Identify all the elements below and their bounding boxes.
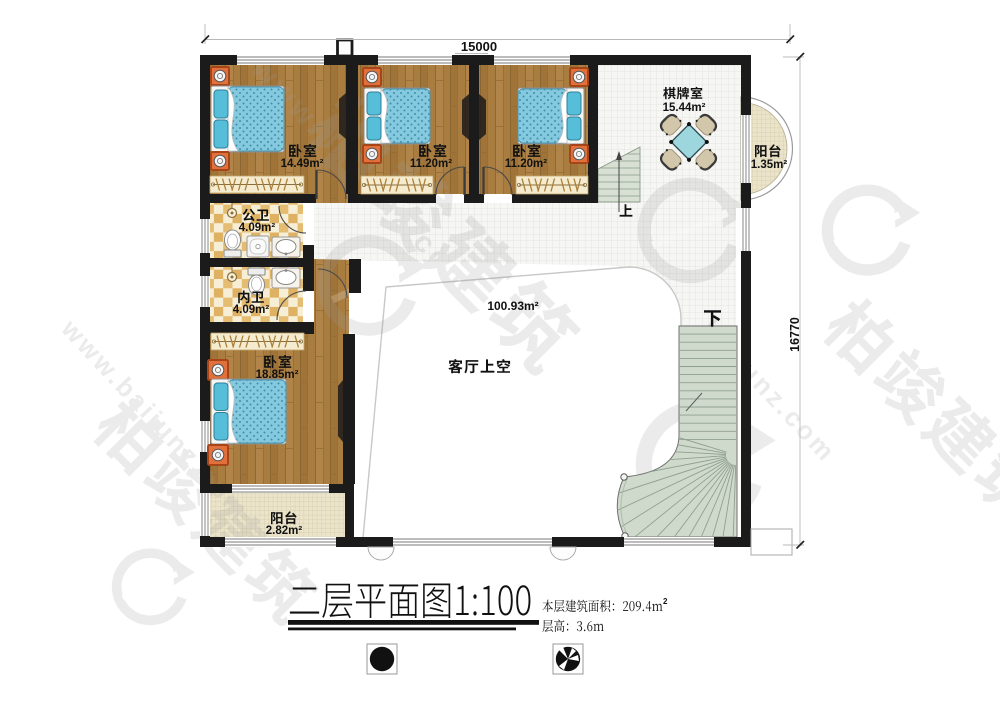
svg-text:18.85m²: 18.85m² bbox=[256, 369, 299, 381]
svg-text:100.93m²: 100.93m² bbox=[487, 299, 538, 313]
svg-text:11.20m²: 11.20m² bbox=[410, 158, 452, 170]
svg-text:16770: 16770 bbox=[788, 317, 802, 352]
svg-text:11.20m²: 11.20m² bbox=[505, 158, 547, 170]
svg-text:2.82m²: 2.82m² bbox=[266, 525, 303, 537]
svg-text:14.49m²: 14.49m² bbox=[281, 158, 324, 170]
svg-text:4.09m²: 4.09m² bbox=[239, 222, 276, 234]
svg-text:2: 2 bbox=[663, 597, 668, 606]
svg-text:15.44m²: 15.44m² bbox=[663, 102, 706, 114]
svg-text:1.35m²: 1.35m² bbox=[751, 159, 788, 171]
svg-text:15000: 15000 bbox=[461, 39, 497, 54]
svg-text:4.09m²: 4.09m² bbox=[233, 304, 270, 316]
